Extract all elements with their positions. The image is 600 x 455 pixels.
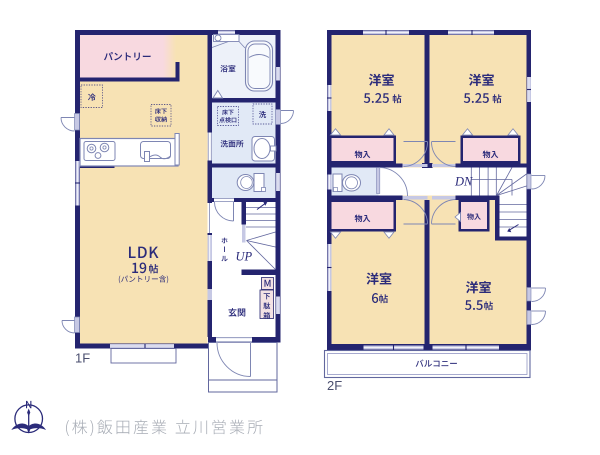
svg-text:1F: 1F	[75, 351, 90, 366]
svg-text:UP: UP	[236, 250, 253, 264]
svg-text:DN: DN	[454, 175, 473, 189]
svg-text:2F: 2F	[327, 378, 342, 393]
